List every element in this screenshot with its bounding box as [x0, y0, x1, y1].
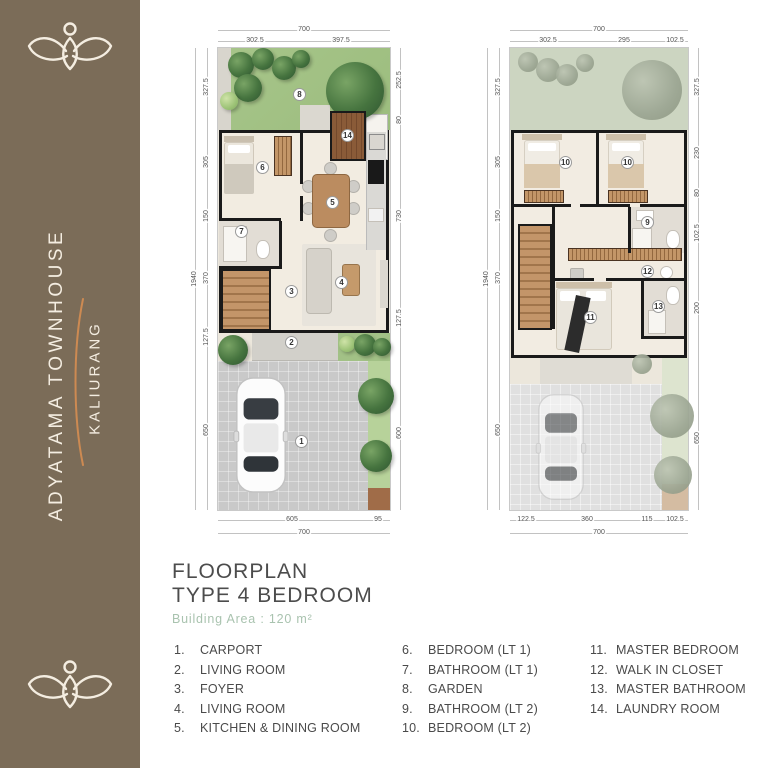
dim-label: 305: [495, 155, 503, 169]
tree: [518, 52, 538, 72]
toilet: [666, 286, 680, 305]
dim-label: 600: [396, 426, 404, 440]
wall: [606, 278, 687, 281]
room-marker-carport: 1: [295, 435, 308, 448]
page-title-line2: TYPE 4 BEDROOM: [172, 584, 373, 608]
staircase: [221, 269, 271, 331]
dim-label: 700: [297, 529, 311, 537]
legend-item: 13.MASTER BATHROOM: [590, 680, 760, 700]
dim-label: 80: [694, 188, 702, 198]
dim-label: 230: [694, 146, 702, 160]
brand-logo-bottom-icon: [26, 660, 114, 712]
toilet: [256, 240, 270, 259]
dim-label: 700: [592, 529, 606, 537]
room-marker-garden: 8: [293, 88, 306, 101]
legend-number: 1.: [174, 641, 200, 661]
legend-number: 5.: [174, 719, 200, 739]
soil-patch: [368, 488, 390, 510]
building-area-label: Building Area : 120 m²: [172, 612, 373, 626]
dim-label: 80: [396, 115, 404, 125]
wardrobe: [608, 190, 648, 203]
floorplan-first-floor: 8 14 6 5 7 3 4 2 1 700 302.5 397.5 605 9…: [218, 48, 390, 510]
blanket: [524, 164, 560, 188]
legend-number: 6.: [402, 641, 428, 661]
legend-number: 3.: [174, 680, 200, 700]
tree: [654, 456, 692, 494]
legend-number: 7.: [402, 661, 428, 681]
legend-number: 12.: [590, 661, 616, 681]
room-marker-foyer: 3: [285, 285, 298, 298]
tv-cabinet: [380, 260, 388, 308]
brand-location: KALIURANG: [87, 321, 104, 435]
legend-number: 13.: [590, 680, 616, 700]
shower: [632, 228, 652, 250]
legend-label: LIVING ROOM: [200, 700, 286, 720]
page-title-line1: FLOORPLAN: [172, 560, 373, 584]
title-block: FLOORPLAN TYPE 4 BEDROOM Building Area :…: [172, 560, 373, 626]
wall: [219, 330, 289, 333]
wall: [511, 204, 571, 207]
dim-label: 305: [203, 155, 211, 169]
dim-label: 730: [396, 209, 404, 223]
legend-label: CARPORT: [200, 641, 262, 661]
dim-label: 370: [203, 271, 211, 285]
brochure-page: ADYATAMA TOWNHOUSE KALIURANG: [0, 0, 768, 768]
pillow: [528, 143, 556, 151]
dim-label: 397.5: [331, 37, 351, 45]
legend-item: 2.LIVING ROOM: [174, 661, 378, 681]
wall: [640, 204, 687, 207]
wall: [219, 266, 281, 269]
tree: [556, 64, 578, 86]
dim-label: 127.5: [396, 308, 404, 328]
wall: [641, 281, 644, 339]
room-legend: 1.CARPORT 2.LIVING ROOM 3.FOYER 4.LIVING…: [174, 641, 760, 739]
dim-label: 650: [203, 423, 211, 437]
legend-number: 8.: [402, 680, 428, 700]
tree: [650, 394, 694, 438]
legend-item: 1.CARPORT: [174, 641, 378, 661]
legend-item: 4.LIVING ROOM: [174, 700, 378, 720]
legend-item: 5.KITCHEN & DINING ROOM: [174, 719, 378, 739]
sofa: [306, 248, 332, 314]
wall: [300, 132, 303, 184]
legend-item: 14.LAUNDRY ROOM: [590, 700, 760, 720]
dim-line: [218, 520, 390, 521]
dim-label: 360: [580, 516, 594, 524]
dim-label: 200: [694, 301, 702, 315]
room-marker-living: 4: [335, 276, 348, 289]
legend-column-2: 6.BEDROOM (LT 1) 7.BATHROOM (LT 1) 8.GAR…: [402, 641, 566, 739]
legend-column-1: 1.CARPORT 2.LIVING ROOM 3.FOYER 4.LIVING…: [174, 641, 378, 739]
wall: [641, 336, 687, 339]
legend-number: 14.: [590, 700, 616, 720]
legend-label: MASTER BATHROOM: [616, 680, 746, 700]
dim-line: [510, 41, 688, 42]
legend-item: 9.BATHROOM (LT 2): [402, 700, 566, 720]
dim-label: 102.5: [665, 516, 685, 524]
legend-item: 3.FOYER: [174, 680, 378, 700]
dim-label: 700: [592, 26, 606, 34]
room-marker-closet: 12: [641, 265, 654, 278]
wardrobe: [274, 136, 292, 176]
wall: [596, 132, 599, 204]
dim-label: 327.5: [694, 77, 702, 97]
stove: [368, 160, 384, 184]
dim-label: 700: [297, 26, 311, 34]
blanket: [224, 164, 254, 194]
legend-item: 11.MASTER BEDROOM: [590, 641, 760, 661]
dim-label: 302.5: [245, 37, 265, 45]
bush: [373, 338, 391, 356]
tree: [252, 48, 274, 70]
dim-label: 327.5: [495, 77, 503, 97]
legend-item: 8.GARDEN: [402, 680, 566, 700]
room-marker-bedroom-a: 10: [559, 156, 572, 169]
room-marker-master-bedroom: 11: [584, 311, 597, 324]
legend-label: WALK IN CLOSET: [616, 661, 723, 681]
tree: [218, 335, 248, 365]
brand-divider-curve: [70, 297, 86, 467]
dim-label: 95: [373, 516, 383, 524]
staircase: [518, 224, 552, 330]
legend-number: 11.: [590, 641, 616, 661]
dim-label: 252.5: [396, 70, 404, 90]
room-marker-terrace: 2: [285, 336, 298, 349]
dim-label: 127.5: [203, 327, 211, 347]
wall: [279, 221, 282, 269]
room-marker-kitchen: 5: [326, 196, 339, 209]
wardrobe: [524, 190, 564, 203]
legend-number: 9.: [402, 700, 428, 720]
tree: [358, 378, 394, 414]
closet-wardrobe: [568, 248, 682, 261]
legend-column-3: 11.MASTER BEDROOM 12.WALK IN CLOSET 13.M…: [590, 641, 760, 739]
wall: [580, 204, 630, 207]
legend-label: GARDEN: [428, 680, 483, 700]
legend-number: 10.: [402, 719, 428, 739]
bush: [339, 336, 355, 352]
legend-item: 7.BATHROOM (LT 1): [402, 661, 566, 681]
wall: [628, 207, 631, 253]
dim-label: 102.5: [694, 223, 702, 243]
dim-label: 327.5: [203, 77, 211, 97]
dim-label: 115: [640, 516, 653, 524]
brand-sidebar: ADYATAMA TOWNHOUSE KALIURANG: [0, 0, 140, 768]
legend-number: 4.: [174, 700, 200, 720]
tree: [234, 74, 262, 102]
room-marker-bathroom: 7: [235, 225, 248, 238]
wall: [552, 207, 555, 329]
dim-label: 150: [203, 209, 211, 223]
wall: [219, 218, 281, 221]
chair: [324, 229, 337, 242]
tree: [360, 440, 392, 472]
legend-label: BATHROOM (LT 1): [428, 661, 538, 681]
legend-label: MASTER BEDROOM: [616, 641, 739, 661]
room-marker-bedroom: 6: [256, 161, 269, 174]
dim-label: 122.5: [516, 516, 536, 524]
terrace-faded: [540, 358, 632, 384]
legend-label: KITCHEN & DINING ROOM: [200, 719, 360, 739]
dim-label: 295: [617, 37, 631, 45]
dim-label: 302.5: [538, 37, 558, 45]
dim-label: 1940: [191, 270, 199, 288]
toilet: [666, 230, 680, 249]
brand-logo-top-icon: [26, 22, 114, 74]
pillow: [228, 145, 250, 153]
room-marker-bathroom: 9: [641, 216, 654, 229]
bush: [220, 92, 238, 110]
wall: [554, 278, 594, 281]
dim-label: 605: [285, 516, 299, 524]
wall: [318, 330, 389, 333]
legend-label: BEDROOM (LT 1): [428, 641, 531, 661]
dim-label: 102.5: [665, 37, 685, 45]
legend-label: BEDROOM (LT 2): [428, 719, 531, 739]
legend-item: 10.BEDROOM (LT 2): [402, 719, 566, 739]
legend-item: 6.BEDROOM (LT 1): [402, 641, 566, 661]
legend-label: BATHROOM (LT 2): [428, 700, 538, 720]
room-marker-master-bathroom: 13: [652, 300, 665, 313]
floorplan-second-floor: 10 10 9 12 11 13 700 302.5 295 102.5 122…: [510, 48, 688, 510]
kitchen-sink: [368, 208, 384, 222]
dim-label: 1940: [483, 270, 491, 288]
room-marker-laundry: 14: [341, 129, 354, 142]
pillow: [612, 143, 640, 151]
dim-line: [510, 520, 688, 521]
dim-label: 150: [495, 209, 503, 223]
legend-item: 12.WALK IN CLOSET: [590, 661, 760, 681]
car-icon: [232, 374, 290, 496]
legend-label: FOYER: [200, 680, 244, 700]
washer: [369, 134, 385, 150]
dim-label: 650: [694, 431, 702, 445]
room-marker-bedroom-b: 10: [621, 156, 634, 169]
bush: [632, 354, 652, 374]
legend-label: LIVING ROOM: [200, 661, 286, 681]
dim-label: 370: [495, 271, 503, 285]
legend-label: LAUNDRY ROOM: [616, 700, 720, 720]
brand-name: ADYATAMA TOWNHOUSE: [46, 229, 68, 521]
car-icon-faded: [534, 392, 588, 502]
legend-number: 2.: [174, 661, 200, 681]
tree: [292, 50, 310, 68]
dim-line: [218, 41, 390, 42]
wall: [300, 196, 303, 221]
shower: [648, 310, 666, 334]
tree: [576, 54, 594, 72]
large-tree: [622, 60, 682, 120]
dim-label: 650: [495, 423, 503, 437]
